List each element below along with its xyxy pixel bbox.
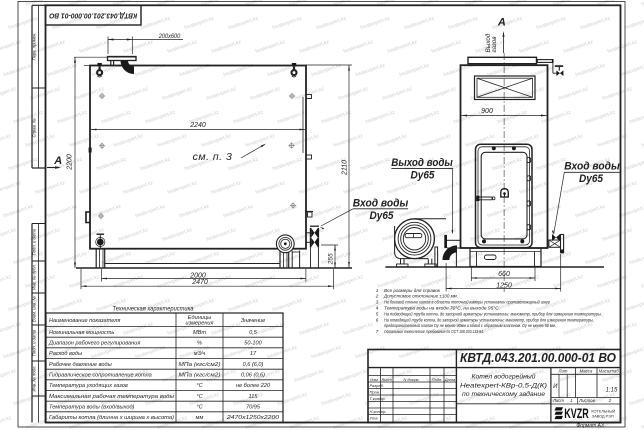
svg-text:6: 6 (376, 317, 379, 322)
svg-text:Dy65: Dy65 (411, 170, 436, 182)
svg-text:3: 3 (376, 300, 379, 305)
svg-text:ЗАВОД РЭП: ЗАВОД РЭП (592, 415, 614, 419)
svg-text:предохранительный клапан Dу не: предохранительный клапан Dу не менее 40м… (384, 322, 556, 328)
svg-text:1250: 1250 (496, 283, 512, 290)
svg-text:по техническому задание: по техническому задание (462, 390, 545, 398)
svg-text:На подводящей трубе котла, до: На подводящей трубе котла, до запорной а… (384, 310, 602, 316)
svg-text:Диапазон рабочего регулировани: Диапазон рабочего регулирования (48, 341, 140, 347)
svg-text:Подп.: Подп. (432, 377, 443, 382)
svg-text:Масштаб: Масштаб (599, 368, 620, 373)
svg-text:660: 660 (498, 271, 510, 278)
svg-text:1: 1 (376, 288, 379, 293)
svg-text:Dy65: Dy65 (370, 210, 395, 222)
svg-text:не более 220: не более 220 (236, 383, 271, 389)
svg-text:1:15: 1:15 (606, 387, 618, 393)
svg-text:Номинальная мощность: Номинальная мощность (49, 330, 114, 336)
svg-text:Все размеры для справок: Все размеры для справок (384, 288, 441, 293)
svg-text:МПа (кгс/см2): МПа (кгс/см2) (179, 362, 221, 368)
svg-text:Наименование показателя: Наименование показателя (49, 318, 120, 324)
svg-text:7: 7 (376, 329, 379, 334)
svg-text:Листов: Листов (578, 398, 595, 403)
svg-text:Dy65: Dy65 (579, 173, 604, 185)
svg-text:Инв. № подл.: Инв. № подл. (32, 366, 37, 392)
svg-text:°С: °С (196, 394, 203, 400)
svg-text:Лист: Лист (381, 377, 393, 382)
svg-text:Рабочее давление воды: Рабочее давление воды (49, 362, 112, 368)
svg-text:измерения: измерения (186, 321, 214, 327)
svg-text:255: 255 (327, 253, 334, 265)
svg-text:Температура уходящих газов: Температура уходящих газов (49, 383, 128, 389)
svg-text:Техническая характеристика: Техническая характеристика (113, 306, 194, 313)
svg-text:Значение: Значение (241, 318, 266, 324)
svg-text:KVZR: KVZR (564, 405, 589, 421)
svg-text:На отводящей трубе котла, до з: На отводящей трубе котла, до запорной ар… (384, 316, 594, 322)
svg-text:МПа (кгс/см2): МПа (кгс/см2) (179, 373, 221, 379)
svg-text:Изм: Изм (370, 377, 378, 382)
svg-text:КОТЕЛЬНЫЙ: КОТЕЛЬНЫЙ (591, 410, 615, 414)
svg-text:2110: 2110 (342, 160, 349, 176)
svg-text:0,6 (6,0): 0,6 (6,0) (243, 362, 264, 368)
svg-text:МВт: МВт (193, 330, 206, 336)
svg-text:2: 2 (375, 294, 379, 299)
svg-text:N докум.: N докум. (403, 377, 419, 382)
svg-text:Справ. №: Справ. № (32, 118, 37, 137)
svg-text:И: И (553, 384, 558, 390)
svg-text:°С: °С (196, 383, 203, 389)
svg-text:0,06 (0,6): 0,06 (0,6) (241, 373, 265, 379)
svg-text:900: 900 (481, 108, 493, 115)
svg-text:0,5: 0,5 (249, 330, 258, 336)
svg-text:А: А (497, 17, 506, 29)
svg-text:70/95: 70/95 (246, 405, 261, 411)
svg-text:Подп. и дата: Подп. и дата (32, 228, 37, 255)
svg-text:Вход воды: Вход воды (353, 198, 409, 210)
svg-text:Формат А3: Формат А3 (576, 423, 604, 429)
svg-text:2470х1250х2200: 2470х1250х2200 (226, 415, 280, 421)
svg-text:Максимальная рабочая температу: Максимальная рабочая температура воды (49, 394, 174, 400)
svg-text:КВТД.043.201.00.000-01 ВО: КВТД.043.201.00.000-01 ВО (460, 351, 616, 365)
svg-text:Н.контр.: Н.контр. (370, 409, 387, 414)
svg-text:Подп. и дата: Подп. и дата (32, 329, 37, 356)
svg-text:115: 115 (249, 394, 259, 400)
svg-text:КВТД.043.201.00.000-01 ВО: КВТД.043.201.00.000-01 ВО (49, 11, 138, 18)
svg-text:А: А (53, 155, 62, 167)
svg-text:200х600: 200х600 (158, 33, 181, 40)
svg-text:5: 5 (376, 311, 379, 316)
svg-text:Габариты котла (длинна х ширин: Габариты котла (длинна х ширина х высота… (49, 415, 174, 421)
svg-text:2200: 2200 (67, 154, 74, 171)
svg-text:см. п. 3: см. п. 3 (193, 151, 233, 163)
svg-text:Допустимое отклонение ±100 мм.: Допустимое отклонение ±100 мм. (383, 294, 458, 299)
svg-text:Выход воды: Выход воды (391, 157, 453, 169)
svg-text:Дата: Дата (444, 377, 456, 382)
svg-text:газов: газов (491, 36, 498, 53)
svg-text:Котел водогрейный: Котел водогрейный (472, 373, 536, 381)
svg-text:Лист: Лист (552, 398, 564, 403)
svg-text:Инв. № дубл.: Инв. № дубл. (32, 264, 37, 290)
svg-text:Температура воды (вход/выход): Температура воды (вход/выход) (49, 405, 135, 411)
svg-text:Взам. инв. №: Взам. инв. № (32, 296, 37, 322)
svg-text:мм: мм (196, 415, 204, 421)
svg-text:Остальные технические требован: Остальные технические требования по ОСТ … (384, 329, 484, 334)
svg-text:2240: 2240 (189, 122, 206, 129)
svg-text:Пров.: Пров. (370, 390, 381, 395)
svg-text:Перв. примен.: Перв. примен. (32, 33, 37, 61)
svg-text:Утв.: Утв. (370, 416, 379, 421)
svg-text:Heatexpert-КВр-0,5-Д(К): Heatexpert-КВр-0,5-Д(К) (460, 383, 547, 390)
svg-text:Расход воды: Расход воды (49, 351, 82, 357)
svg-text:2470: 2470 (191, 279, 208, 286)
svg-text:Температура воды на входе 70°С: Температура воды на входе 70°С, на выход… (384, 306, 500, 311)
svg-text:м3/ч: м3/ч (194, 351, 205, 357)
svg-text:Лит: Лит (558, 368, 568, 373)
svg-text:На боковой стенке котла в обла: На боковой стенке котла в области топочн… (384, 299, 550, 305)
svg-text:°С: °С (196, 405, 203, 411)
svg-text:%: % (197, 341, 202, 347)
svg-text:50-100: 50-100 (244, 341, 262, 347)
svg-text:Гидравлическое сопротивление к: Гидравлическое сопротивление котла (49, 373, 152, 379)
svg-text:17: 17 (250, 351, 257, 357)
svg-text:Вход воды: Вход воды (564, 161, 620, 173)
svg-text:4: 4 (376, 306, 379, 311)
svg-text:Масса: Масса (580, 368, 593, 373)
svg-text:Т.контр.: Т.контр. (370, 396, 386, 401)
svg-text:Разраб.: Разраб. (370, 383, 384, 388)
